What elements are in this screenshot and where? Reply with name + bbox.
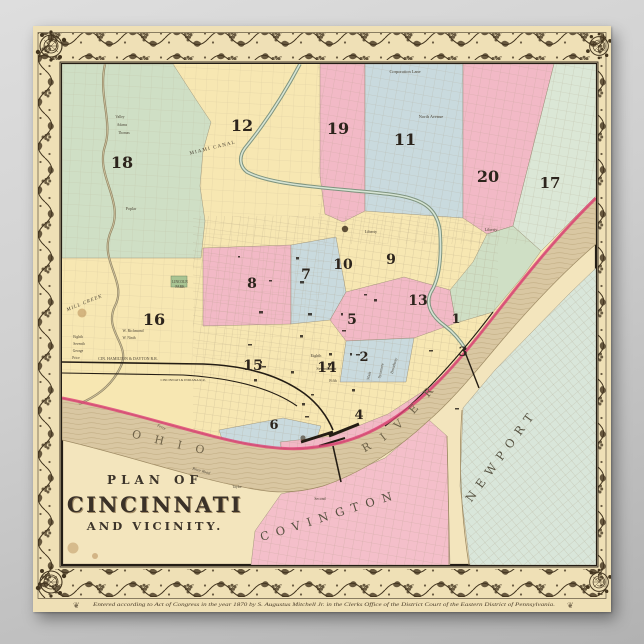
building-block (374, 299, 377, 302)
building-block (352, 389, 355, 392)
ward-number-6: 6 (269, 418, 278, 433)
ward-number-17: 17 (540, 174, 561, 192)
map-label: W. Ninth (122, 336, 135, 340)
title-plan-of: PLAN OF (107, 473, 203, 487)
building-block (302, 403, 305, 406)
building-block (296, 257, 299, 260)
ward-number-1: 1 (451, 312, 460, 327)
map-label: PARK (175, 285, 185, 289)
building-block (238, 256, 240, 258)
map-label: Seventh (73, 342, 85, 346)
title-cincinnati: CINCINNATI (67, 492, 243, 517)
building-block (364, 294, 367, 296)
building-block (329, 353, 332, 356)
map-label: CIN. HAMILTON & DAYTON R.R. (98, 356, 158, 361)
ward-number-11: 11 (394, 130, 416, 149)
ward-number-12: 12 (231, 116, 253, 135)
ward-number-19: 19 (327, 119, 349, 138)
map-label: Fifth (329, 379, 336, 383)
building-block (342, 330, 346, 332)
building-block (350, 353, 352, 356)
fleuron-icon: ❦ (567, 601, 574, 610)
map-label: Eighth (73, 335, 83, 339)
building-block (341, 313, 343, 316)
map-label: CINCINNATI & INDIANA R.R. (160, 378, 205, 382)
building-block (248, 344, 252, 346)
ward-number-4: 4 (354, 408, 363, 423)
copyright-line: Entered according to Act of Congress in … (92, 601, 555, 608)
poster-canvas: Corporation LaneNorth AvenueLibertyLiber… (33, 26, 611, 612)
ward-number-13: 13 (408, 293, 427, 309)
map-label: Price (72, 356, 80, 360)
map-label: Liberty (365, 229, 378, 234)
building-block (254, 379, 257, 382)
map-label: Eighth (311, 353, 322, 358)
ward-number-8: 8 (247, 276, 257, 292)
ward-number-5: 5 (347, 312, 357, 328)
copyright-row: Entered according to Act of Congress in … (73, 601, 574, 610)
map-label: LINCOLN (172, 280, 188, 284)
building-block (259, 311, 263, 314)
title-and-vicinity: AND VICINITY. (86, 519, 223, 533)
ward-number-3: 3 (458, 345, 467, 360)
map-label: Liberty (485, 227, 499, 232)
map-label: North Avenue (419, 114, 443, 119)
building-block (455, 408, 459, 410)
map-poster: Corporation LaneNorth AvenueLibertyLiber… (33, 26, 611, 612)
ward-number-14: 14 (317, 360, 337, 376)
map-label: George (73, 349, 84, 353)
page-background: { "page": { "background_top": "#dedede",… (0, 0, 644, 644)
ward-number-15: 15 (243, 358, 262, 374)
ward-number-20: 20 (477, 167, 499, 186)
map-label: Second (314, 497, 325, 501)
ward-number-2: 2 (359, 350, 368, 365)
ward-number-18: 18 (111, 153, 133, 172)
ward-number-10: 10 (333, 257, 353, 273)
building-block (269, 280, 272, 282)
map-label: Valley (115, 115, 124, 119)
map-label: Poplar (126, 206, 137, 211)
ward-number-9: 9 (386, 252, 396, 268)
map-label: Corporation Lane (389, 69, 420, 74)
map-label: Thomas (118, 131, 130, 135)
building-block (429, 350, 433, 352)
map-label: W. Richmond (123, 329, 144, 333)
building-block (291, 371, 294, 374)
map-label: Adams (117, 123, 128, 127)
building-block (300, 335, 303, 338)
ward-number-7: 7 (301, 267, 311, 283)
building-block (305, 416, 309, 418)
fleuron-icon: ❦ (73, 601, 80, 610)
building-block (311, 394, 314, 396)
building-block (308, 313, 312, 316)
ward-number-16: 16 (143, 310, 165, 329)
map-label: Taylor (232, 485, 242, 489)
